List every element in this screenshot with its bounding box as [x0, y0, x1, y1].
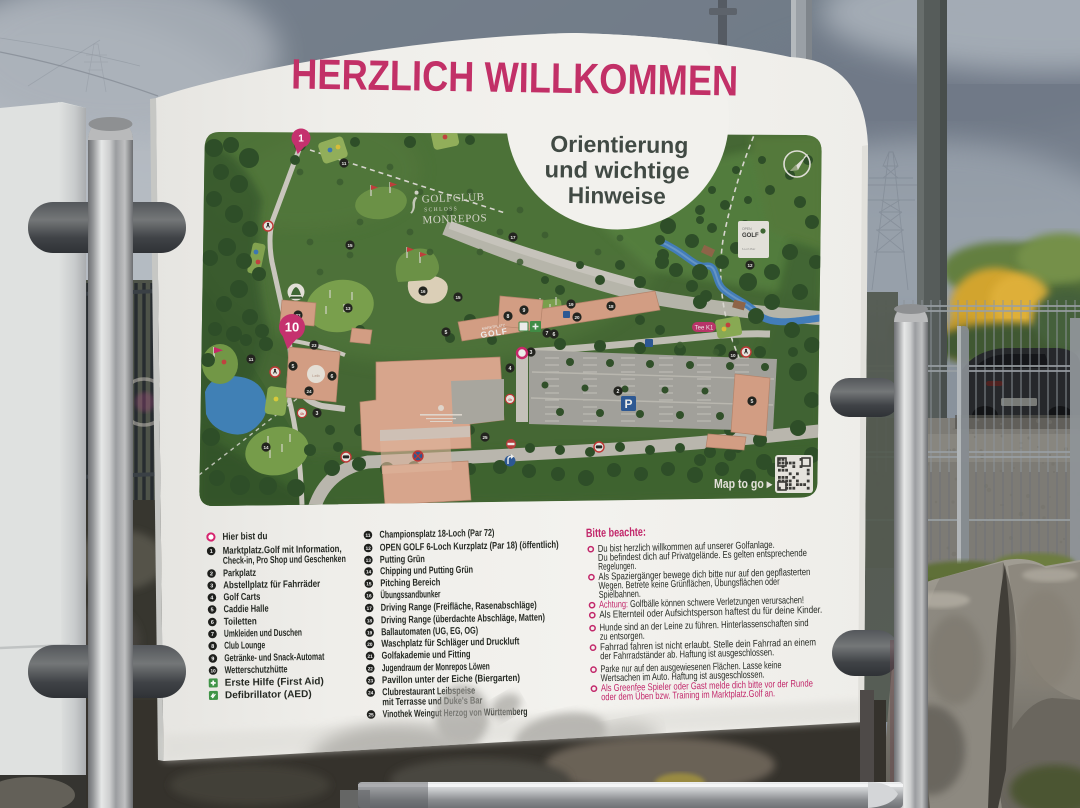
- svg-text:Toiletten: Toiletten: [224, 616, 257, 628]
- svg-text:Umkleiden und Duschen: Umkleiden und Duschen: [224, 628, 302, 640]
- svg-text:HERZLICH WILLKOMMEN: HERZLICH WILLKOMMEN: [291, 52, 739, 106]
- svg-text:Defibrillator (AED): Defibrillator (AED): [225, 689, 312, 701]
- svg-text:und wichtige: und wichtige: [544, 156, 689, 184]
- svg-text:10: 10: [285, 320, 299, 335]
- svg-text:25: 25: [368, 712, 374, 717]
- svg-text:Golfakademie und Fitting: Golfakademie und Fitting: [381, 649, 470, 662]
- svg-text:Chipping und Putting Grün: Chipping und Putting Grün: [380, 565, 473, 578]
- svg-text:1: 1: [210, 549, 213, 555]
- svg-text:Abstellplatz für Fahrräder: Abstellplatz für Fahrräder: [223, 579, 320, 592]
- svg-text:18: 18: [367, 618, 373, 623]
- svg-text:1: 1: [298, 134, 304, 145]
- svg-text:Bitte beachte:: Bitte beachte:: [586, 525, 646, 540]
- svg-text:Jugendraum der Monrepos Löwen: Jugendraum der Monrepos Löwen: [382, 661, 490, 674]
- svg-text:Parkplatz: Parkplatz: [223, 568, 256, 580]
- svg-text:Putting Grün: Putting Grün: [380, 554, 425, 566]
- svg-text:13: 13: [366, 558, 372, 563]
- svg-text:19: 19: [367, 630, 373, 635]
- svg-text:Orientierung: Orientierung: [550, 131, 688, 158]
- svg-text:22: 22: [368, 666, 374, 671]
- svg-text:11: 11: [365, 533, 370, 538]
- svg-text:20: 20: [367, 642, 373, 647]
- svg-text:Hinweise: Hinweise: [568, 182, 666, 209]
- svg-text:2: 2: [210, 571, 213, 577]
- svg-text:23: 23: [368, 678, 374, 683]
- svg-text:7: 7: [211, 632, 214, 638]
- svg-text:9: 9: [211, 656, 214, 662]
- svg-text:21: 21: [367, 654, 373, 659]
- svg-text:24: 24: [368, 690, 374, 695]
- svg-text:5: 5: [211, 607, 214, 613]
- svg-text:12: 12: [366, 546, 372, 551]
- svg-text:6: 6: [211, 620, 214, 626]
- svg-text:14: 14: [366, 569, 372, 574]
- svg-text:Hier bist du: Hier bist du: [222, 531, 267, 543]
- svg-text:Wetterschutzhütte: Wetterschutzhütte: [224, 664, 287, 676]
- svg-text:8: 8: [211, 644, 214, 650]
- svg-text:4: 4: [210, 595, 213, 601]
- svg-text:Golf Carts: Golf Carts: [223, 592, 261, 604]
- svg-text:Check-in, Pro Shop und Geschen: Check-in, Pro Shop und Geschenken: [223, 554, 346, 567]
- svg-text:Pitching Bereich: Pitching Bereich: [380, 577, 440, 589]
- svg-text:17: 17: [367, 606, 373, 611]
- svg-text:10: 10: [210, 668, 216, 673]
- svg-text:Club Lounge: Club Lounge: [224, 640, 265, 652]
- svg-text:3: 3: [210, 583, 213, 589]
- svg-text:Getränke- und Snack-Automat: Getränke- und Snack-Automat: [224, 652, 325, 665]
- svg-text:Caddie Halle: Caddie Halle: [224, 604, 269, 616]
- svg-text:Erste Hilfe (First Aid): Erste Hilfe (First Aid): [225, 676, 324, 689]
- svg-text:Championsplatz 18-Loch (Par 72: Championsplatz 18-Loch (Par 72): [379, 528, 494, 541]
- svg-text:Übungssandbunker: Übungssandbunker: [380, 587, 440, 601]
- svg-text:16: 16: [366, 593, 372, 598]
- svg-text:15: 15: [366, 581, 372, 586]
